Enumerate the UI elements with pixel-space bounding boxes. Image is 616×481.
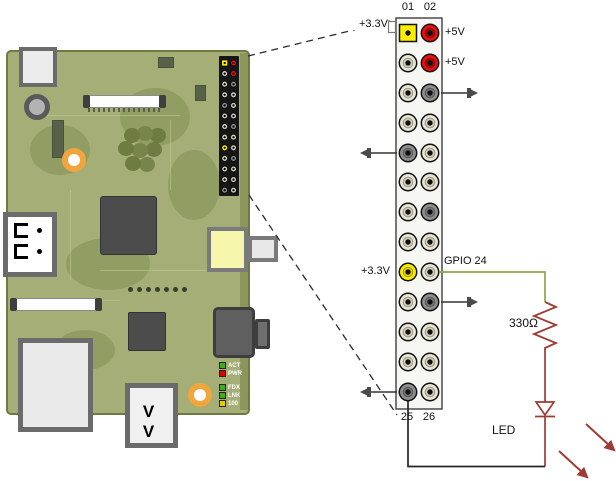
- led-symbol: [535, 402, 555, 417]
- wiring-diagram: V V ACTPWRFDXLNK100: [0, 0, 616, 481]
- resistor-value-label: 330Ω: [496, 316, 538, 330]
- callout-dashed-lines: [248, 21, 397, 415]
- ground-pin-icon: [441, 297, 478, 307]
- gpio24-label: GPIO 24: [444, 255, 487, 267]
- plus5v-label-2: +5V: [445, 56, 465, 68]
- ground-pin-icon: [441, 88, 478, 98]
- gpio-header-schematic: [360, 18, 478, 409]
- board-gpio-header: [219, 56, 239, 196]
- pin-number-02: 02: [420, 1, 440, 13]
- schematic-overlay: [0, 0, 616, 481]
- ground-pin-icon: [360, 148, 397, 158]
- light-emission-arrows: [559, 424, 614, 477]
- pin-number-25: 25: [397, 411, 417, 423]
- pin-number-26: 26: [419, 411, 439, 423]
- plus33v-label-pin17: +3.3V: [348, 265, 390, 277]
- plus33v-label-pin1: +3.3V: [349, 18, 388, 30]
- led-label: LED: [492, 423, 515, 437]
- pin-number-01: 01: [398, 1, 418, 13]
- v33-pin-glyph: [389, 22, 396, 33]
- gpio24-wire: [439, 272, 545, 302]
- plus5v-label-1: +5V: [445, 26, 465, 38]
